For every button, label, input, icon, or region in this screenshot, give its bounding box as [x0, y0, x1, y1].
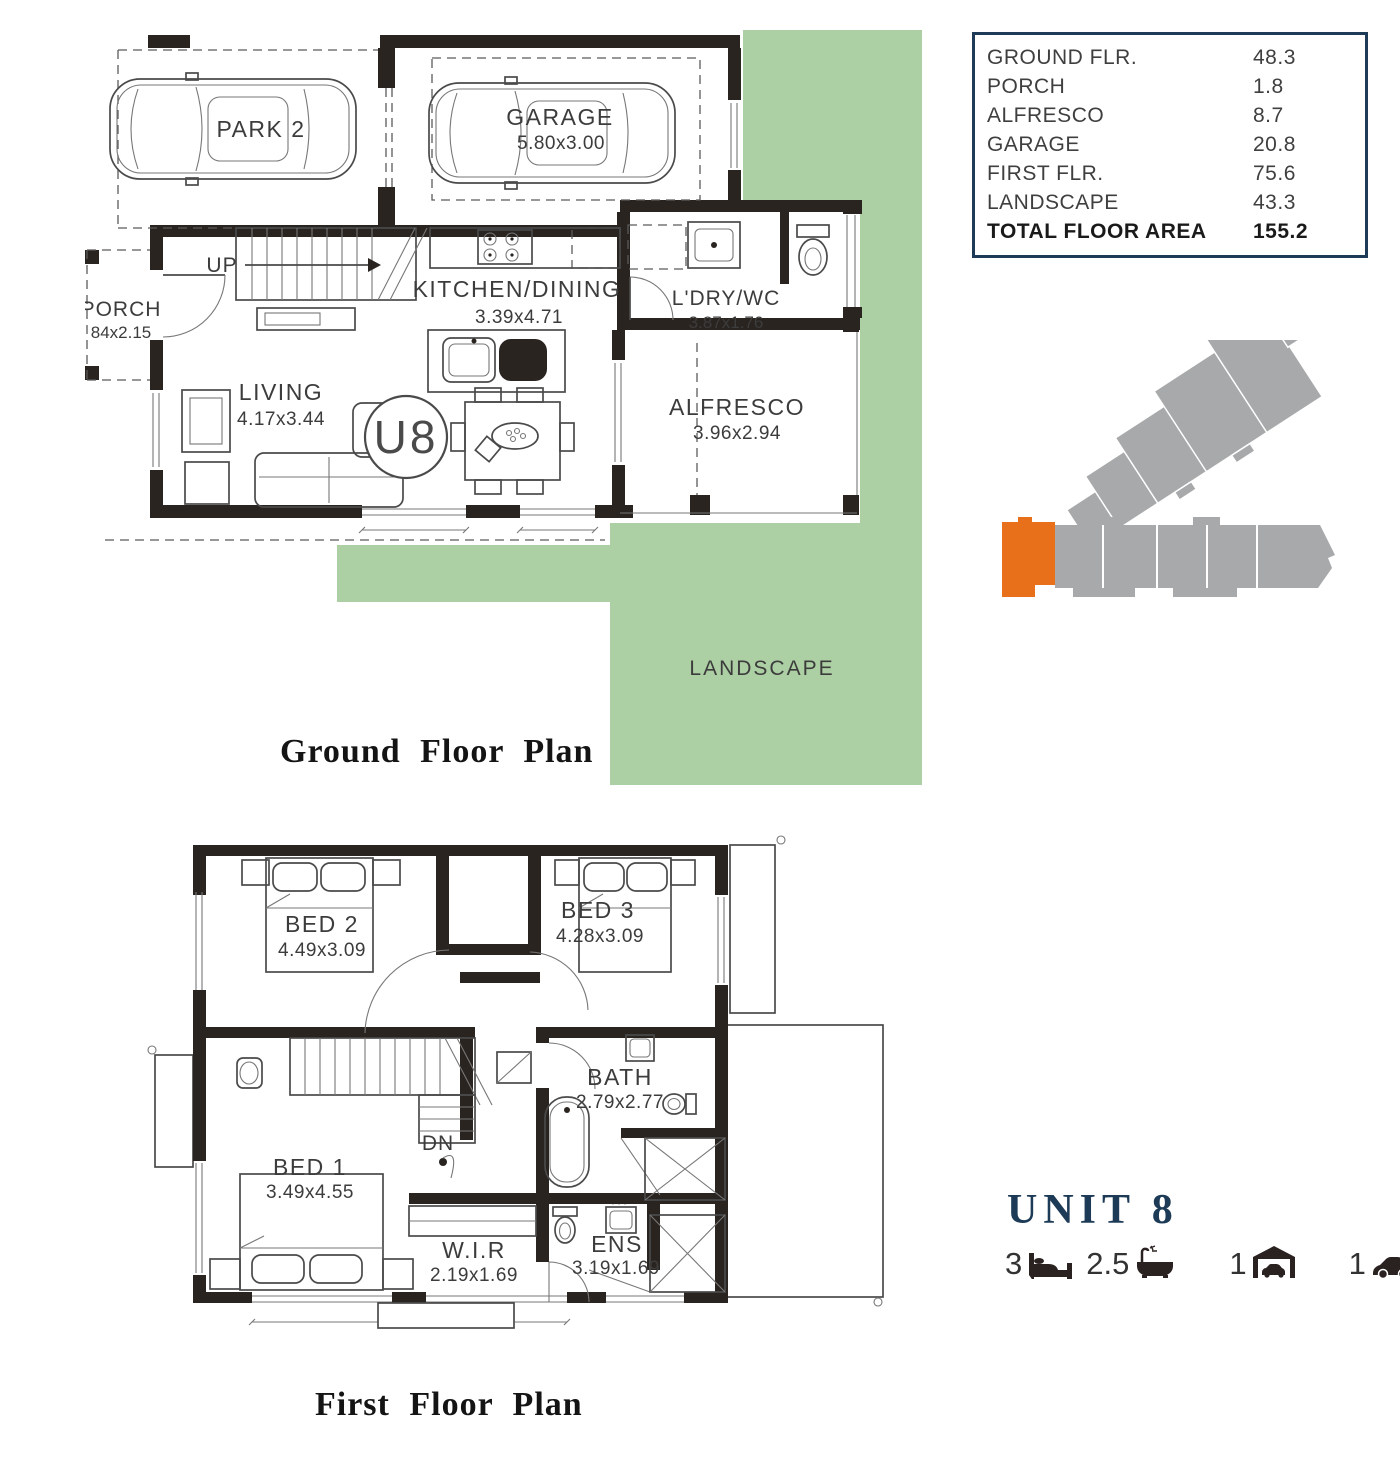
room-label-wir: W.I.R: [442, 1237, 506, 1263]
garage-icon: [1251, 1245, 1297, 1279]
first-floor-plan: BED 2 4.49x3.09 BED 3 4.28x3.09 BATH 2.7…: [140, 830, 885, 1340]
island-bench: [428, 330, 565, 392]
room-label-bed3: BED 3: [561, 897, 635, 923]
stairs-up: [236, 228, 427, 300]
first-floor-title: First Floor Plan: [315, 1386, 583, 1424]
unit-specs: 3 2.5 1 1: [1005, 1245, 1400, 1279]
room-label-living: LIVING: [239, 379, 323, 405]
ens-vanity: [606, 1202, 636, 1233]
spec-cars: 1: [1349, 1248, 1400, 1279]
table-row: ALFRESCO8.7: [987, 101, 1353, 130]
ground-floor-plan: LANDSCAPE: [85, 25, 935, 795]
linen-cupboard: [497, 1052, 531, 1083]
ldry-door: [630, 277, 673, 320]
spec-baths: 2.5: [1086, 1245, 1177, 1279]
room-dims-bed3: 4.28x3.09: [556, 926, 644, 947]
spec-garage: 1: [1229, 1245, 1296, 1279]
shower-ens: [650, 1215, 725, 1292]
room-dims-alfresco: 3.96x2.94: [693, 423, 781, 444]
garage-door: [386, 88, 392, 188]
room-dims-living: 4.17x3.44: [237, 409, 325, 430]
table-row-total: TOTAL FLOOR AREA155.2: [987, 217, 1353, 246]
toilet: [797, 225, 829, 275]
unit-badge: U8: [365, 396, 447, 478]
room-dims-bath: 2.79x2.77: [576, 1092, 664, 1113]
room-label-alfresco: ALFRESCO: [669, 394, 805, 420]
room-label-kitchen: KITCHEN/DINING: [413, 276, 622, 302]
room-dims-ens: 3.19x1.69: [572, 1258, 660, 1279]
room-label-bed2: BED 2: [285, 911, 359, 937]
area-table: GROUND FLR.48.3 PORCH1.8 ALFRESCO8.7 GAR…: [972, 32, 1368, 258]
table-row: GARAGE20.8: [987, 130, 1353, 159]
ground-floor-title: Ground Floor Plan: [280, 733, 593, 771]
svg-text:U8: U8: [374, 411, 439, 463]
bed-icon: [1026, 1247, 1072, 1279]
unit-title: UNIT 8: [1007, 1186, 1179, 1234]
room-label-garage: GARAGE: [506, 104, 613, 130]
dining-table: [451, 388, 574, 494]
floorplan-sheet: LANDSCAPE: [0, 0, 1400, 1477]
site-unit-highlight: [1002, 517, 1055, 597]
hall-cabinet: [257, 308, 355, 330]
wardrobe: [409, 1206, 536, 1236]
car-icon: [1370, 1251, 1400, 1279]
bath-icon: [1133, 1245, 1177, 1279]
room-dims-wir: 2.19x1.69: [430, 1265, 518, 1286]
room-dims-ldry: 3.87x1.76: [689, 313, 764, 332]
side-stool: [237, 1058, 262, 1088]
room-label-bed1: BED 1: [273, 1154, 347, 1180]
tv-unit: [182, 390, 230, 452]
stairs-down-label: DN: [422, 1132, 454, 1155]
laundry-sink: [688, 222, 740, 268]
room-dims-porch: 84x2.15: [91, 323, 152, 342]
table-row: PORCH1.8: [987, 72, 1353, 101]
spec-beds: 3: [1005, 1247, 1072, 1279]
room-dims-bed2: 4.49x3.09: [278, 940, 366, 961]
table-row: GROUND FLR.48.3: [987, 43, 1353, 72]
room-dims-garage: 5.80x3.00: [517, 133, 605, 154]
site-building-upper: [1021, 340, 1337, 554]
bottom-bay: [378, 1303, 514, 1328]
room-label-park: PARK 2: [216, 116, 305, 142]
stairs-up-label: UP: [206, 254, 237, 277]
shower-bath: [645, 1138, 725, 1200]
room-label-ens: ENS: [591, 1231, 643, 1257]
room-dims-kitchen: 3.39x4.71: [475, 307, 563, 328]
landscape-label: LANDSCAPE: [689, 657, 834, 680]
room-label-porch: PORCH: [85, 298, 161, 321]
bath-toilet: [663, 1094, 696, 1114]
room-label-bath: BATH: [587, 1064, 653, 1090]
table-row: FIRST FLR.75.6: [987, 159, 1353, 188]
ldry-bench: [628, 225, 686, 269]
entry-door: [163, 275, 225, 337]
room-dims-bed1: 3.49x4.55: [266, 1182, 354, 1203]
ottoman: [185, 462, 229, 504]
bath-vanity: [626, 1030, 654, 1061]
table-row: LANDSCAPE43.3: [987, 188, 1353, 217]
site-key-plan: [985, 340, 1355, 610]
ens-toilet: [553, 1207, 577, 1243]
site-building-lower: [1002, 517, 1335, 597]
room-label-ldry: L'DRY/WC: [672, 287, 780, 310]
